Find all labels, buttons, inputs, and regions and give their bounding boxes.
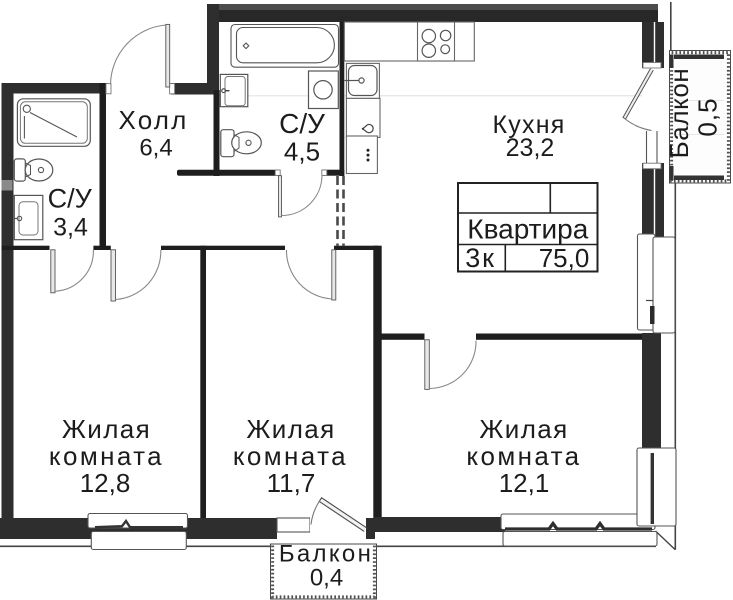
svg-text:11,7: 11,7 bbox=[267, 468, 316, 498]
svg-text:0,5: 0,5 bbox=[693, 97, 723, 136]
svg-text:75,0: 75,0 bbox=[539, 243, 590, 273]
svg-text:Жилая: Жилая bbox=[62, 414, 151, 444]
svg-text:Квартира: Квартира bbox=[467, 214, 588, 245]
svg-text:Балкон: Балкон bbox=[279, 541, 373, 568]
svg-text:3к: 3к bbox=[465, 243, 495, 273]
svg-text:0,4: 0,4 bbox=[310, 565, 343, 592]
svg-text:Холл: Холл bbox=[118, 105, 188, 135]
svg-text:23,2: 23,2 bbox=[506, 134, 555, 162]
svg-text:12,1: 12,1 bbox=[499, 468, 550, 498]
svg-text:4,5: 4,5 bbox=[284, 137, 320, 167]
svg-text:комната: комната bbox=[49, 441, 164, 471]
svg-text:3,4: 3,4 bbox=[53, 214, 88, 242]
svg-text:Балкон: Балкон bbox=[664, 68, 694, 159]
svg-text:комната: комната bbox=[466, 441, 581, 471]
svg-text:6,4: 6,4 bbox=[139, 135, 172, 162]
svg-text:С/У: С/У bbox=[48, 184, 93, 214]
svg-text:комната: комната bbox=[233, 441, 348, 471]
svg-text:Жилая: Жилая bbox=[479, 414, 568, 444]
svg-text:Жилая: Жилая bbox=[246, 414, 335, 444]
svg-text:С/У: С/У bbox=[279, 108, 325, 139]
svg-text:12,8: 12,8 bbox=[80, 468, 131, 498]
